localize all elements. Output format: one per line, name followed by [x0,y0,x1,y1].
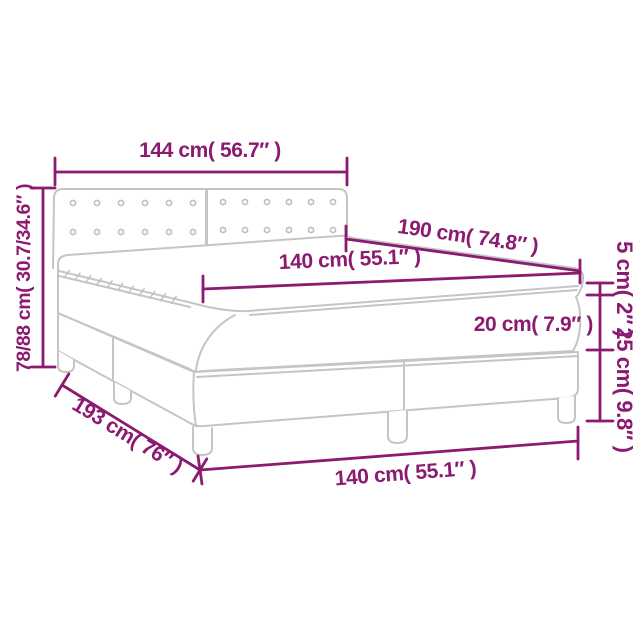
tufting-button [118,229,123,234]
diagram-canvas: 144 cm( 56.7″ ) 78/88 cm( 30.7/34.6″ ) 1… [0,0,640,640]
label-headboard-width: 144 cm( 56.7″ ) [139,139,281,162]
tufting-button [142,200,147,205]
tufting-button [70,200,75,205]
tufting-button [286,199,291,204]
tufting-button [220,227,225,232]
bed-leg [193,427,212,455]
tufting-button [330,227,335,232]
tufting-button [166,200,171,205]
tufting-button [142,229,147,234]
tufting-button [264,227,269,232]
tufting-button [330,199,335,204]
bed-leg [558,396,575,423]
label-topper-thickness: 5 cm( 2″ ) [612,241,637,337]
dim-tick [55,374,69,396]
tufting-button [166,229,171,234]
tufting-button [242,199,247,204]
label-mattress-thickness: 20 cm( 7.9″ ) [474,313,593,336]
tufting-button [220,199,225,204]
tufting-button [94,229,99,234]
label-total-height: 78/88 cm( 30.7/34.6″ ) [13,184,35,372]
headboard-right-panel [208,189,347,240]
bed-dimension-diagram: 144 cm( 56.7″ ) 78/88 cm( 30.7/34.6″ ) 1… [0,0,640,640]
tufting-button [264,199,269,204]
tufting-button [286,227,291,232]
tufting-button [190,229,195,234]
label-base-height: 25 cm( 9.8″ ) [612,327,637,452]
tufting-button [190,200,195,205]
tufting-button [308,227,313,232]
label-mattress-width-bottom: 140 cm( 55.1″ ) [334,457,477,491]
tufting-button [70,229,75,234]
tufting-button [242,227,247,232]
tufting-button [94,200,99,205]
tufting-button [118,200,123,205]
bed-leg [388,410,407,443]
tufting-button [308,199,313,204]
